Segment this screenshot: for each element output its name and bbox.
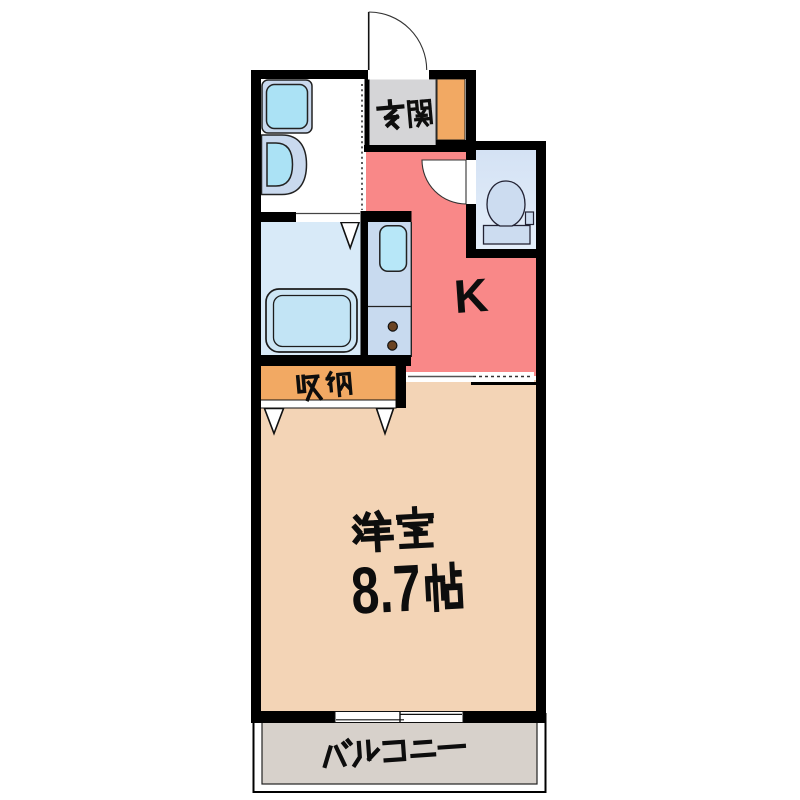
svg-text:K: K <box>452 268 490 323</box>
svg-text:8.7: 8.7 <box>349 550 423 628</box>
